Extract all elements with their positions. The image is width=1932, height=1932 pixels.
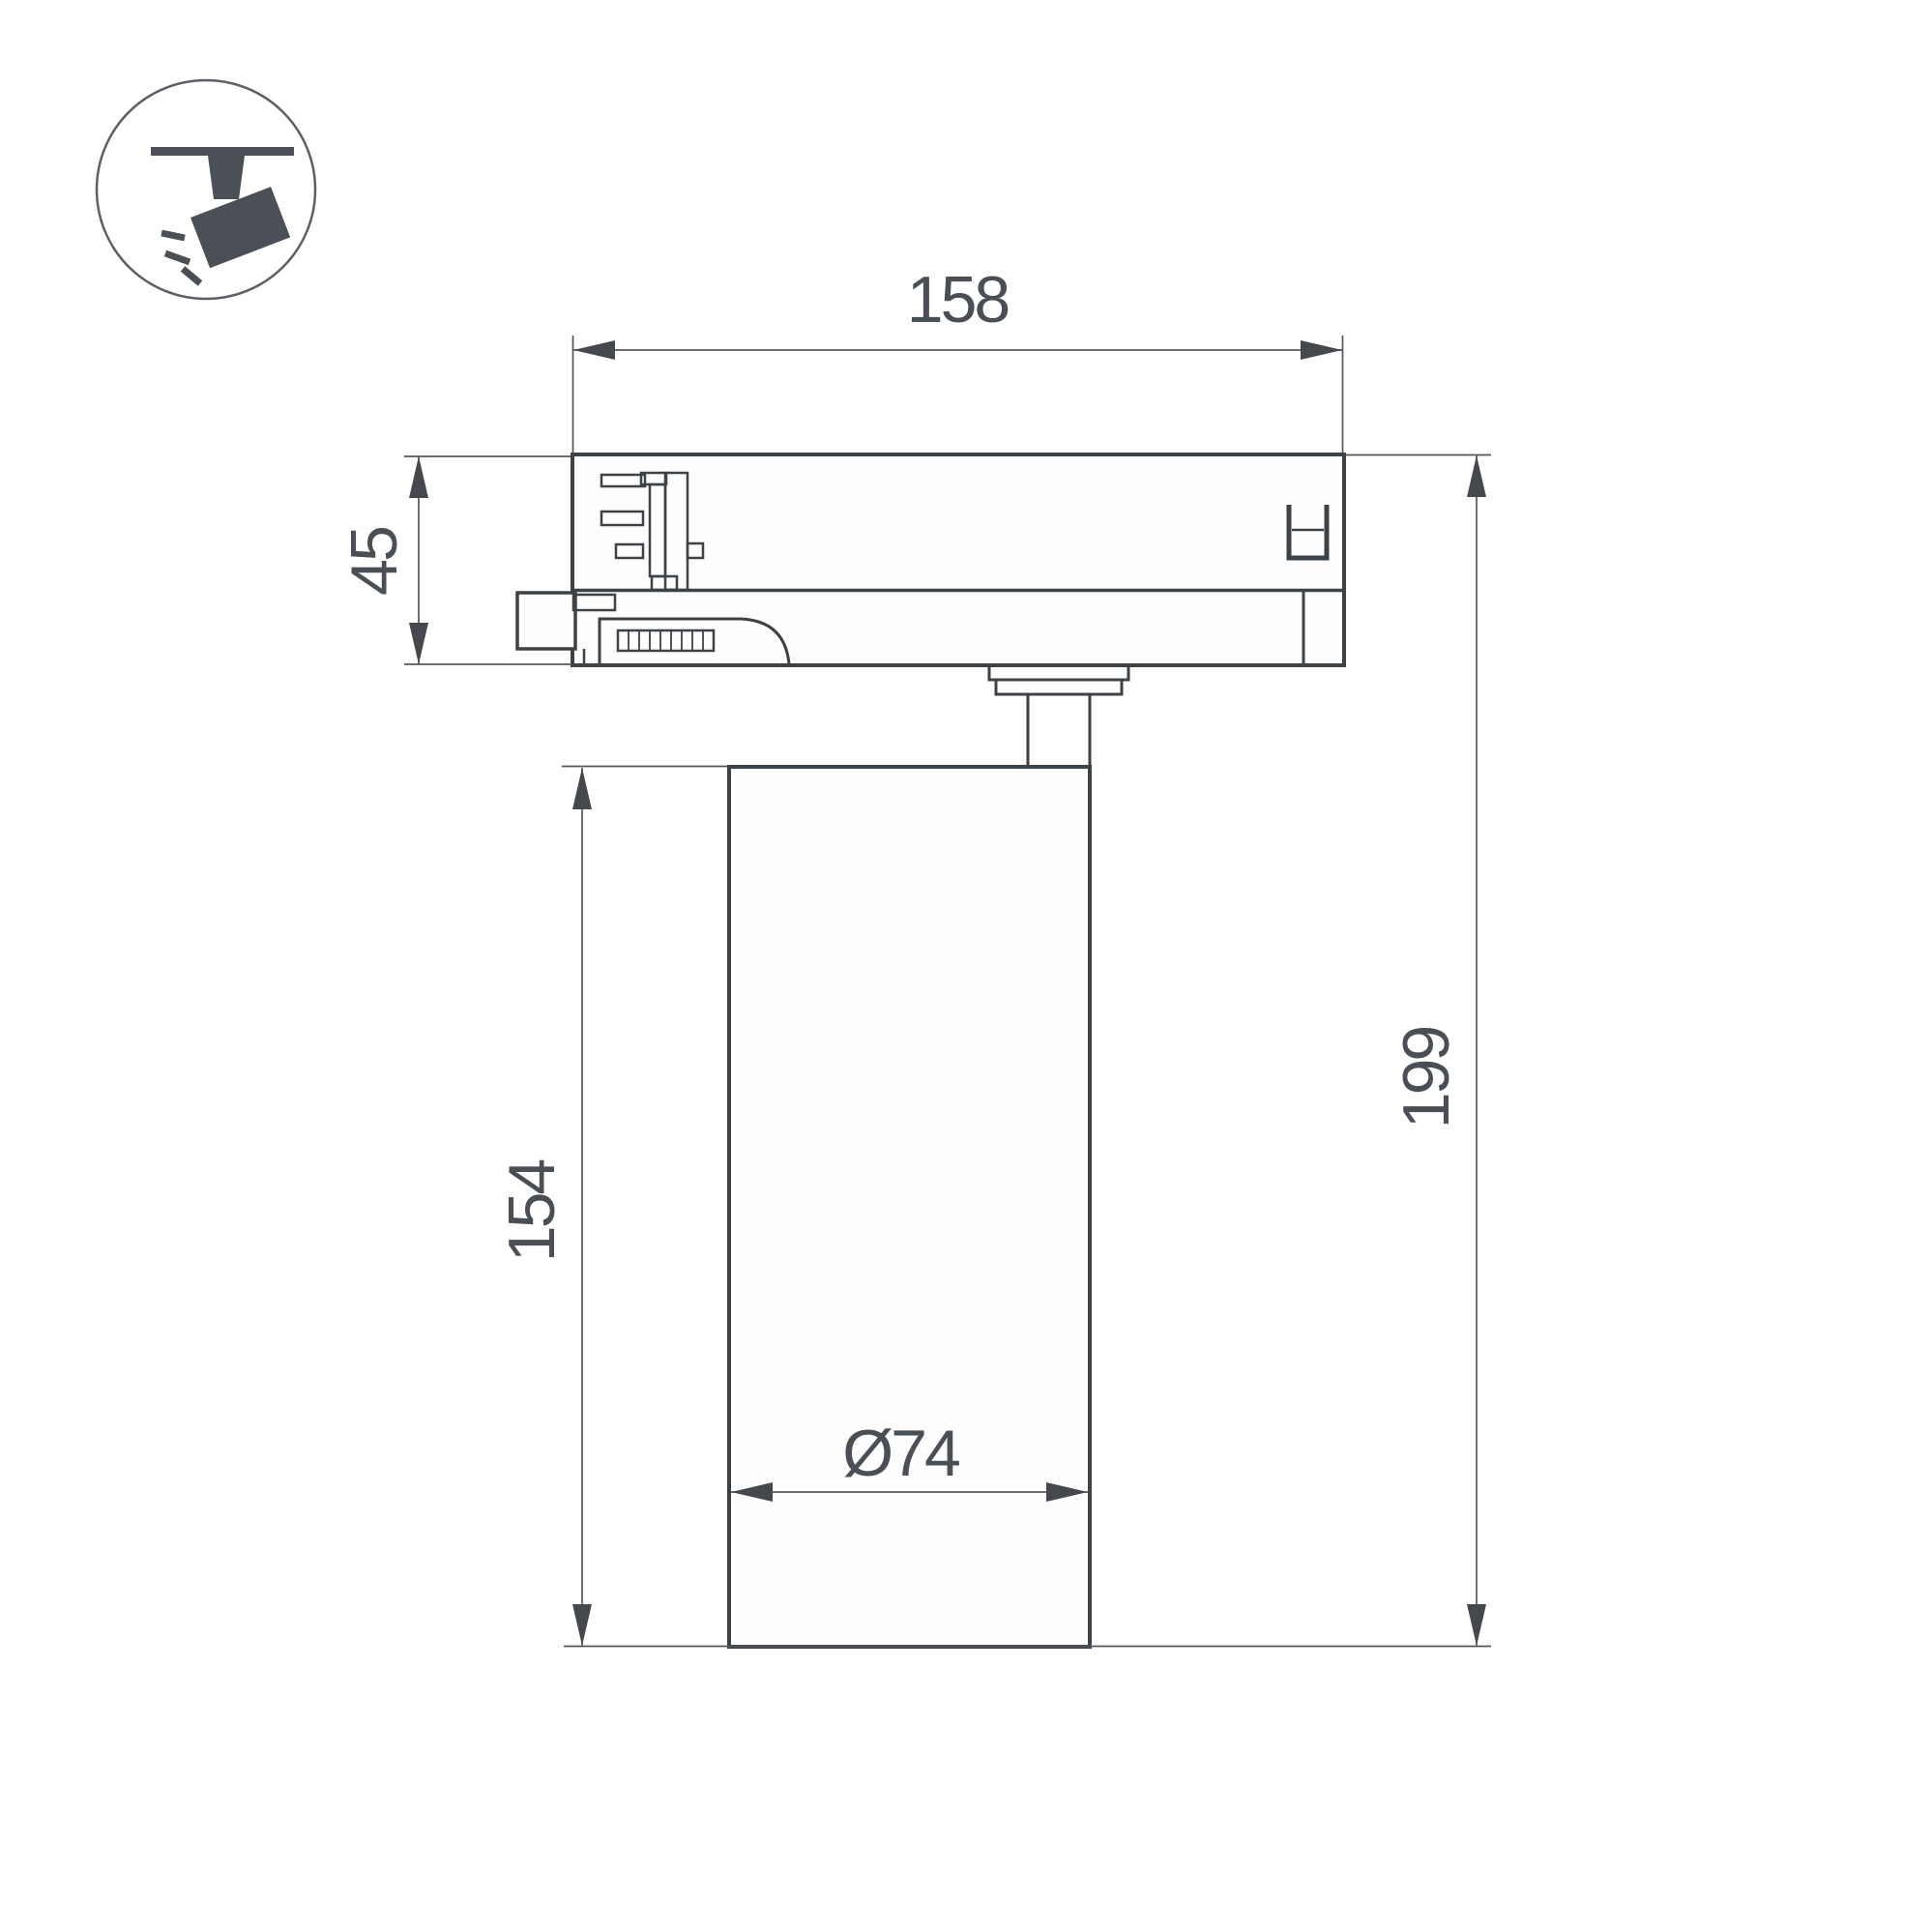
arrowhead-bottom bbox=[409, 623, 428, 664]
icon-track-bar bbox=[151, 147, 294, 156]
arrowhead-bottom bbox=[1467, 1604, 1486, 1646]
lamp-assembly bbox=[729, 665, 1128, 1647]
dim-label-154: 154 bbox=[495, 1160, 569, 1263]
icon-track-stem bbox=[208, 156, 245, 199]
dim-label-diameter: Ø74 bbox=[842, 1417, 959, 1490]
dimension-track-width: 158 bbox=[573, 263, 1343, 453]
arrowhead-top bbox=[1467, 455, 1486, 497]
latch-lever bbox=[517, 593, 575, 649]
arrowhead-top bbox=[572, 768, 592, 809]
track-spotlight-icon bbox=[97, 80, 315, 299]
drawing-svg: 158 45 154 199 bbox=[0, 0, 1932, 1932]
arrowhead-top bbox=[409, 456, 428, 498]
dim-label-199: 199 bbox=[1390, 1028, 1463, 1129]
dim-label-45: 45 bbox=[337, 528, 411, 596]
icon-light-ray bbox=[161, 233, 185, 238]
arrowhead-left bbox=[573, 340, 615, 360]
mount-step-upper bbox=[989, 665, 1128, 680]
mount-step-lower bbox=[996, 680, 1122, 694]
arrowhead-bottom bbox=[572, 1604, 592, 1646]
dimension-body-height: 154 bbox=[495, 767, 727, 1647]
lamp-cylinder-body bbox=[729, 767, 1090, 1647]
dim-label-158: 158 bbox=[907, 263, 1009, 337]
track-adapter bbox=[517, 454, 1344, 665]
arrowhead-right bbox=[1301, 340, 1342, 360]
technical-drawing-page: 158 45 154 199 bbox=[0, 0, 1932, 1932]
icon-circle bbox=[97, 80, 315, 299]
